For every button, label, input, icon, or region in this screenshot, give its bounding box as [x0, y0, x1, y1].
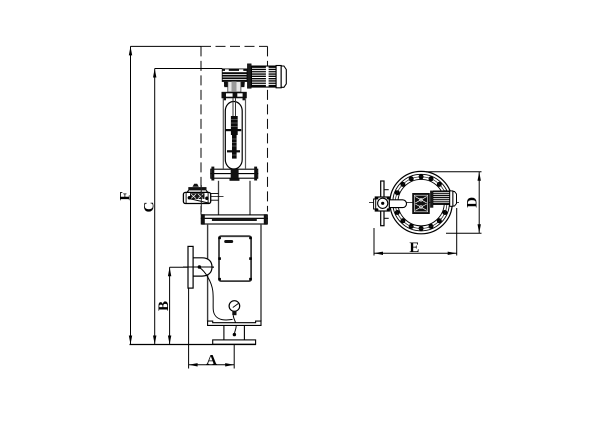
svg-text:B: B [156, 301, 172, 311]
svg-text:D: D [465, 197, 481, 208]
svg-text:C: C [142, 201, 158, 212]
svg-text:A: A [206, 352, 217, 368]
svg-text:F: F [118, 191, 134, 200]
svg-text:E: E [409, 240, 419, 256]
